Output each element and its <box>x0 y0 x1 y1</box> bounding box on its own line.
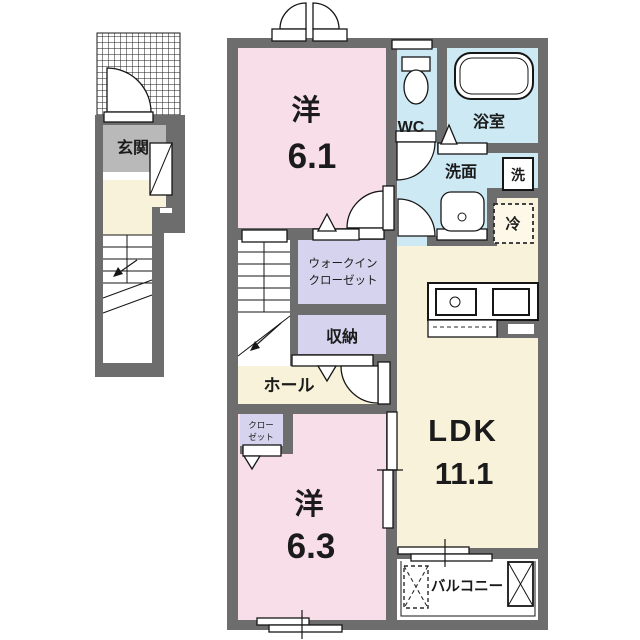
sliding-door-panel <box>383 470 393 528</box>
wall-vent <box>160 208 172 213</box>
fridge-label: 冷 <box>505 215 520 233</box>
wc-window <box>392 40 432 49</box>
unit-stairwell <box>238 240 297 366</box>
washbasin-icon <box>441 192 484 231</box>
kitchen-counter-notch <box>508 324 534 334</box>
wall-segment <box>152 233 164 377</box>
balcony-window-panel <box>411 554 492 561</box>
bedroom-6-1-label: 洋 <box>291 93 320 127</box>
wic-label-line1: ウォークイン <box>309 257 378 270</box>
casement-window-right-arc <box>313 3 339 29</box>
wc-label: WC <box>398 119 425 136</box>
wic-label-line2: クローゼット <box>309 274 378 287</box>
window-panel <box>257 618 309 625</box>
hall-label: ホール <box>264 376 315 395</box>
washer-label: 洗 <box>511 167 525 183</box>
toilet-bowl-icon <box>404 70 428 104</box>
closet-label-line1: クロー <box>248 420 274 430</box>
wall-segment <box>283 414 293 450</box>
kitchen-sink-icon <box>436 289 476 315</box>
balcony-window-panel <box>398 547 469 554</box>
ldk-size: 11.1 <box>435 456 494 491</box>
bedroom-6-3-size: 6.3 <box>287 527 336 566</box>
entrance-hall-floor <box>103 207 152 235</box>
bedroom-6-3-label: 洋 <box>294 487 323 521</box>
ldk-label: LDK <box>428 413 498 448</box>
stove-icon <box>493 289 529 315</box>
entrance-door-leaf <box>104 112 153 122</box>
toilet-tank-icon <box>402 57 430 71</box>
bathtub-icon <box>455 53 533 99</box>
floor-plan-svg: 玄関 <box>0 0 640 640</box>
wall-right <box>538 38 548 630</box>
wall-segment <box>95 363 164 377</box>
washroom-door-leaf <box>383 186 394 230</box>
stair-landing <box>242 230 287 242</box>
floor-plan: 玄関 <box>0 0 640 640</box>
hall-door-leaf <box>378 362 390 404</box>
storage-label: 収納 <box>326 327 358 346</box>
entrance-step <box>103 172 150 180</box>
wall-left <box>227 38 238 630</box>
casement-window-left-arc <box>280 3 306 29</box>
casement-window-leaf <box>272 29 306 41</box>
entrance-label: 玄関 <box>117 138 149 157</box>
wall-segment <box>297 304 397 315</box>
wall-segment <box>227 404 397 414</box>
kitchen-counter-front <box>428 320 497 337</box>
entrance-block: 玄関 <box>95 33 185 377</box>
balcony-label: バルコニー <box>431 578 503 595</box>
closet-opening <box>243 445 281 456</box>
casement-window-leaf <box>313 29 347 41</box>
storage-opening <box>292 355 373 366</box>
window-panel <box>269 625 342 632</box>
sliding-door-panel <box>387 412 397 470</box>
washroom-label: 洗面 <box>445 162 477 181</box>
bedroom-6-1-size: 6.1 <box>288 137 337 176</box>
closet-label-line2: ゼット <box>248 432 274 442</box>
wall-segment <box>95 115 103 377</box>
bathroom-label: 浴室 <box>473 112 505 131</box>
wall-segment <box>290 240 298 366</box>
